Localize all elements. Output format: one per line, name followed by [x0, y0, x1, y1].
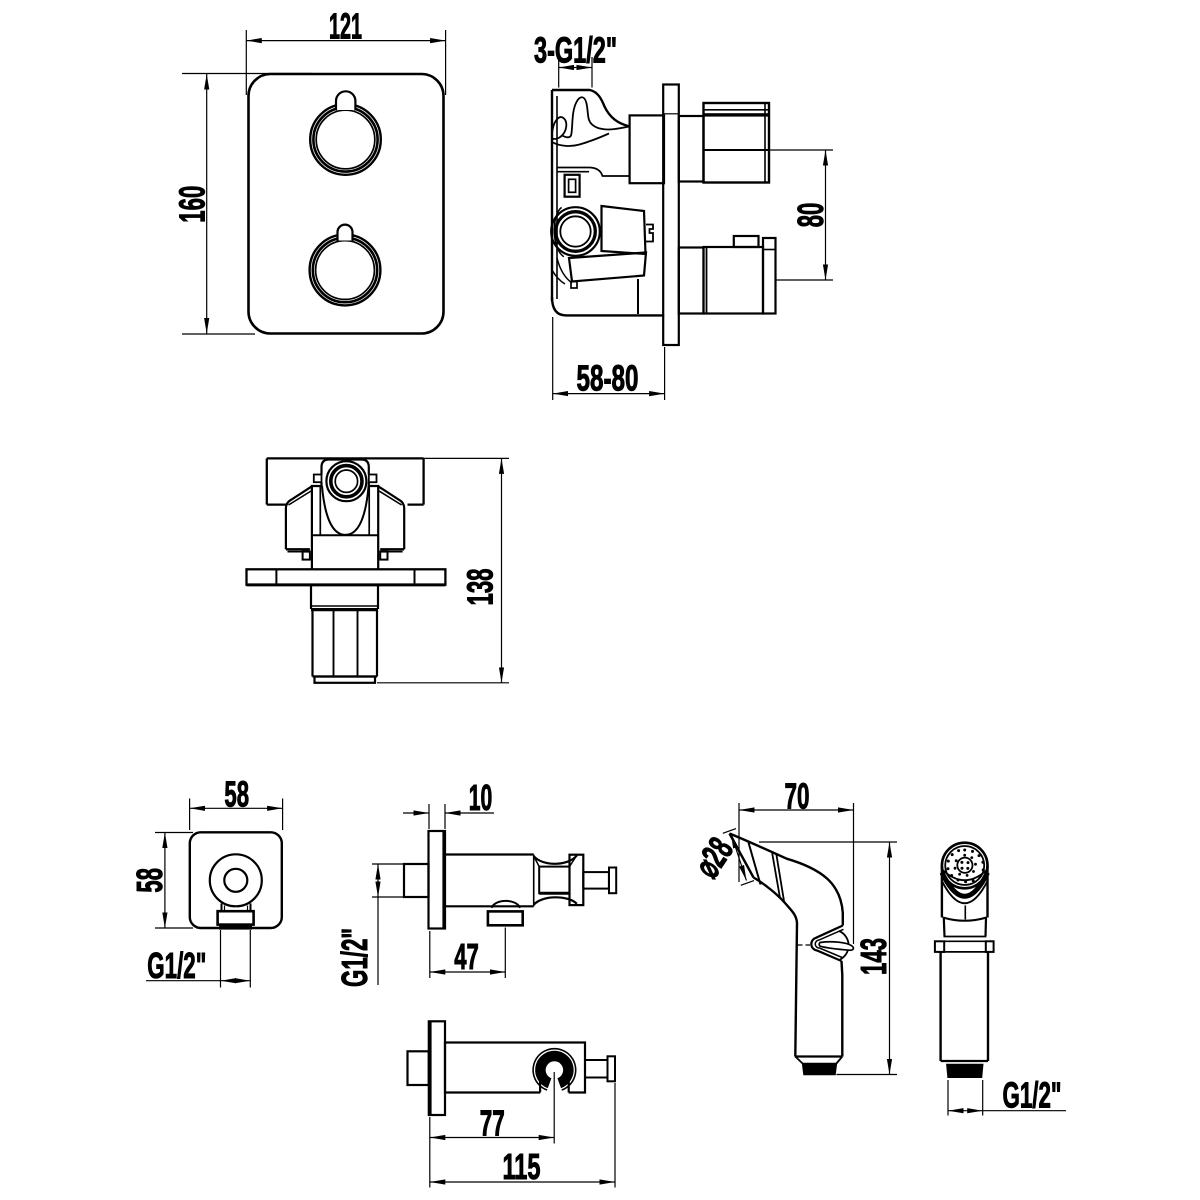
svg-text:70: 70 — [785, 776, 810, 817]
svg-text:138: 138 — [460, 569, 501, 606]
svg-text:143: 143 — [853, 938, 894, 975]
svg-text:160: 160 — [171, 186, 212, 223]
svg-text:G1/2": G1/2" — [147, 945, 206, 986]
svg-text:58-80: 58-80 — [577, 358, 639, 399]
svg-text:58: 58 — [224, 774, 249, 815]
svg-text:10: 10 — [469, 777, 493, 818]
svg-text:3-G1/2": 3-G1/2" — [534, 30, 617, 71]
svg-text:80: 80 — [790, 203, 831, 228]
svg-text:115: 115 — [503, 1146, 541, 1187]
svg-text:G1/2": G1/2" — [1003, 1075, 1062, 1116]
svg-text:G1/2": G1/2" — [334, 928, 375, 987]
svg-text:121: 121 — [329, 5, 362, 46]
svg-text:58: 58 — [129, 868, 170, 893]
svg-text:47: 47 — [454, 936, 479, 977]
svg-text:77: 77 — [480, 1103, 505, 1144]
